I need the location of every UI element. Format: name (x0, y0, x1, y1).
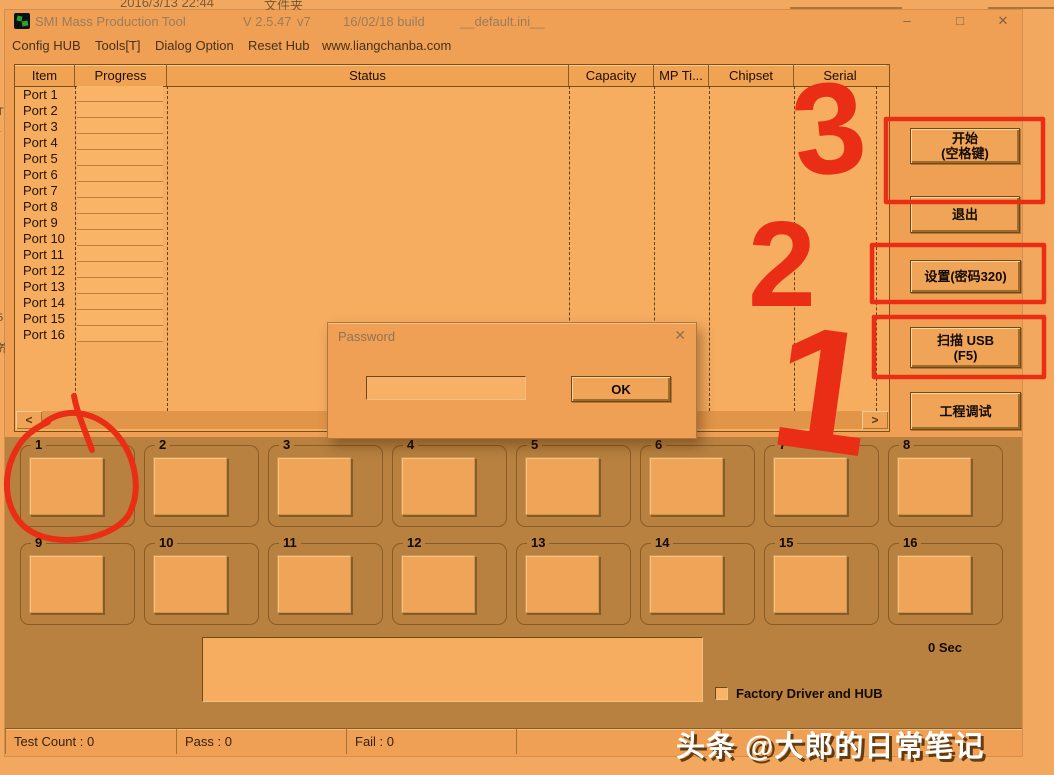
port-label: Port 13 (23, 279, 65, 294)
app-icon (14, 13, 30, 29)
usb-slot-group: 14 (640, 543, 755, 625)
usb-slot-panel: 12345678 910111213141516 0 Sec Factory D… (5, 437, 1022, 728)
port-label: Port 12 (23, 263, 65, 278)
settings-button-label: 设置(密码320) (924, 269, 1006, 284)
progress-bar (77, 262, 163, 278)
usb-slot-number: 15 (775, 535, 797, 550)
usb-slot-number: 2 (155, 437, 170, 452)
usb-slot-number: 12 (403, 535, 425, 550)
column-divider (167, 86, 168, 411)
port-label: Port 6 (23, 167, 58, 182)
usb-slot-group: 13 (516, 543, 631, 625)
table-row[interactable]: Port 3 (15, 118, 889, 134)
usb-slot-number: 11 (279, 535, 301, 550)
port-label: Port 8 (23, 199, 58, 214)
usb-slot-group: 10 (144, 543, 259, 625)
ini-file-name: __default.ini__ (460, 14, 545, 29)
usb-slot-group: 11 (268, 543, 383, 625)
port-rows: Port 1Port 2Port 3Port 4Port 5Port 6Port… (15, 86, 889, 342)
table-row[interactable]: Port 7 (15, 182, 889, 198)
port-label: Port 1 (23, 87, 58, 102)
close-button[interactable]: ✕ (987, 11, 1019, 31)
engineering-debug-label: 工程调试 (939, 404, 991, 419)
background-window-edge (790, 7, 902, 9)
table-row[interactable]: Port 11 (15, 246, 889, 262)
app-version: V 2.5.47 (243, 14, 291, 29)
progress-bar (77, 198, 163, 214)
app-subversion: v7 (297, 14, 311, 29)
port-label: Port 5 (23, 151, 58, 166)
usb-slot-number: 14 (651, 535, 673, 550)
port-label: Port 9 (23, 215, 58, 230)
scroll-right-button[interactable]: > (862, 411, 888, 429)
usb-slot-indicator (773, 555, 847, 613)
usb-slot-group: 4 (392, 445, 507, 527)
watermark-text: 头条 @大郎的日常笔记 (676, 723, 984, 765)
usb-slot-indicator (897, 555, 971, 613)
usb-slot-group: 3 (268, 445, 383, 527)
usb-slot-group: 16 (888, 543, 1003, 625)
usb-slot-indicator (897, 457, 971, 515)
usb-slot-indicator (525, 555, 599, 613)
usb-slot-number: 9 (31, 535, 46, 550)
status-fail: Fail : 0 (347, 729, 517, 754)
password-ok-label: OK (611, 382, 631, 397)
column-divider (709, 86, 710, 411)
column-header-mptime[interactable]: MP Ti... (654, 65, 709, 86)
table-row[interactable]: Port 6 (15, 166, 889, 182)
table-header: Item Progress Status Capacity MP Ti... C… (15, 65, 889, 87)
menu-tools[interactable]: Tools[T] (95, 38, 141, 53)
usb-slot-group: 9 (20, 543, 135, 625)
port-label: Port 4 (23, 135, 58, 150)
usb-slot-number: 10 (155, 535, 177, 550)
column-header-serial[interactable]: Serial (794, 65, 886, 86)
start-button-line2: (空格键) (941, 146, 989, 161)
start-button-line1: 开始 (952, 131, 978, 146)
password-dialog-close-icon[interactable]: ✕ (674, 327, 686, 344)
usb-slot-indicator (29, 555, 103, 613)
column-header-progress[interactable]: Progress (75, 65, 167, 86)
password-dialog-titlebar[interactable]: Password ✕ (328, 323, 696, 349)
column-header-capacity[interactable]: Capacity (569, 65, 654, 86)
background-fragment: T (0, 106, 4, 118)
log-textbox[interactable] (202, 637, 703, 702)
table-row[interactable]: Port 14 (15, 294, 889, 310)
progress-bar (77, 118, 163, 134)
background-fragment: 5 (0, 312, 3, 324)
progress-bar (77, 214, 163, 230)
progress-bar (77, 230, 163, 246)
table-row[interactable]: Port 8 (15, 198, 889, 214)
factory-checkbox[interactable] (715, 687, 728, 700)
menu-config-hub[interactable]: Config HUB (12, 38, 81, 53)
usb-slot-indicator (29, 457, 103, 515)
usb-slot-group: 6 (640, 445, 755, 527)
background-window-edge (988, 7, 1054, 9)
progress-bar (77, 294, 163, 310)
progress-bar (77, 278, 163, 294)
usb-slot-indicator (525, 457, 599, 515)
usb-slot-number: 3 (279, 437, 294, 452)
column-divider (75, 86, 76, 411)
usb-slot-indicator (153, 457, 227, 515)
progress-bar (77, 182, 163, 198)
usb-slot-group: 15 (764, 543, 879, 625)
slot-row-1: 12345678 (20, 445, 1003, 527)
table-row[interactable]: Port 12 (15, 262, 889, 278)
usb-slot-number: 8 (899, 437, 914, 452)
port-label: Port 2 (23, 103, 58, 118)
usb-slot-number: 4 (403, 437, 418, 452)
port-label: Port 16 (23, 327, 65, 342)
password-ok-button[interactable]: OK (571, 376, 671, 402)
usb-slot-indicator (773, 457, 847, 515)
engineering-debug-button[interactable]: 工程调试 (910, 392, 1021, 430)
table-row[interactable]: Port 9 (15, 214, 889, 230)
menu-reset-hub[interactable]: Reset Hub (248, 38, 309, 53)
start-button[interactable]: 开始 (空格键) (910, 128, 1020, 164)
port-label: Port 15 (23, 311, 65, 326)
usb-slot-indicator (277, 457, 351, 515)
usb-slot-indicator (649, 555, 723, 613)
status-test-count: Test Count : 0 (5, 729, 177, 754)
usb-slot-group: 2 (144, 445, 259, 527)
progress-bar (77, 246, 163, 262)
progress-bar (77, 166, 163, 182)
table-row[interactable]: Port 10 (15, 230, 889, 246)
minimize-button[interactable]: – (891, 11, 923, 31)
column-divider (794, 86, 795, 411)
usb-slot-number: 6 (651, 437, 666, 452)
scan-usb-line1: 扫描 USB (937, 333, 994, 348)
column-header-chipset[interactable]: Chipset (709, 65, 794, 86)
port-label: Port 10 (23, 231, 65, 246)
password-dialog: Password ✕ OK (327, 322, 697, 439)
maximize-button[interactable]: □ (944, 11, 976, 31)
progress-bar (77, 134, 163, 150)
factory-checkbox-label: Factory Driver and HUB (736, 686, 883, 701)
menu-dialog-option[interactable]: Dialog Option (155, 38, 234, 53)
scan-usb-button[interactable]: 扫描 USB (F5) (910, 327, 1021, 368)
table-row[interactable]: Port 13 (15, 278, 889, 294)
usb-slot-indicator (401, 555, 475, 613)
port-label: Port 3 (23, 119, 58, 134)
column-divider (876, 86, 877, 411)
usb-slot-indicator (401, 457, 475, 515)
table-row[interactable]: Port 4 (15, 134, 889, 150)
port-label: Port 14 (23, 295, 65, 310)
exit-button-label: 退出 (952, 207, 978, 222)
progress-bar (77, 310, 163, 326)
menu-website-link[interactable]: www.liangchanba.com (322, 38, 451, 53)
column-header-status[interactable]: Status (167, 65, 569, 86)
progress-bar (77, 86, 163, 102)
usb-slot-indicator (277, 555, 351, 613)
app-build: 16/02/18 build (343, 14, 425, 29)
progress-bar (77, 326, 163, 342)
usb-slot-group: 8 (888, 445, 1003, 527)
desktop-timestamp: 2016/3/13 22:44 (120, 0, 214, 10)
usb-slot-indicator (153, 555, 227, 613)
usb-slot-group: 5 (516, 445, 631, 527)
slot-row-2: 910111213141516 (20, 543, 1003, 625)
menu-bar: Config HUB Tools[T] Dialog Option Reset … (5, 33, 1022, 57)
usb-slot-number: 13 (527, 535, 549, 550)
usb-slot-number: 1 (31, 437, 46, 452)
port-label: Port 7 (23, 183, 58, 198)
usb-slot-number: 5 (527, 437, 542, 452)
progress-bar (77, 102, 163, 118)
elapsed-time-label: 0 Sec (903, 640, 987, 655)
window-title: SMI Mass Production Tool (35, 14, 186, 29)
usb-slot-group: 12 (392, 543, 507, 625)
status-pass: Pass : 0 (177, 729, 347, 754)
settings-button[interactable]: 设置(密码320) (910, 260, 1021, 293)
table-row[interactable]: Port 1 (15, 86, 889, 102)
usb-slot-number: 7 (775, 437, 790, 452)
usb-slot-group: 7 (764, 445, 879, 527)
password-dialog-title: Password (338, 329, 395, 344)
table-row[interactable]: Port 2 (15, 102, 889, 118)
title-bar[interactable]: SMI Mass Production Tool V 2.5.47 v7 16/… (5, 10, 1022, 33)
usb-slot-group: 1 (20, 445, 135, 527)
exit-button[interactable]: 退出 (910, 196, 1020, 233)
progress-bar (77, 150, 163, 166)
password-input[interactable] (366, 376, 526, 400)
port-label: Port 11 (23, 247, 64, 262)
scroll-left-button[interactable]: < (16, 411, 42, 429)
column-header-item[interactable]: Item (15, 65, 75, 86)
scan-usb-line2: (F5) (954, 348, 978, 363)
usb-slot-number: 16 (899, 535, 921, 550)
background-fragment: r (0, 128, 1, 140)
usb-slot-indicator (649, 457, 723, 515)
table-row[interactable]: Port 5 (15, 150, 889, 166)
